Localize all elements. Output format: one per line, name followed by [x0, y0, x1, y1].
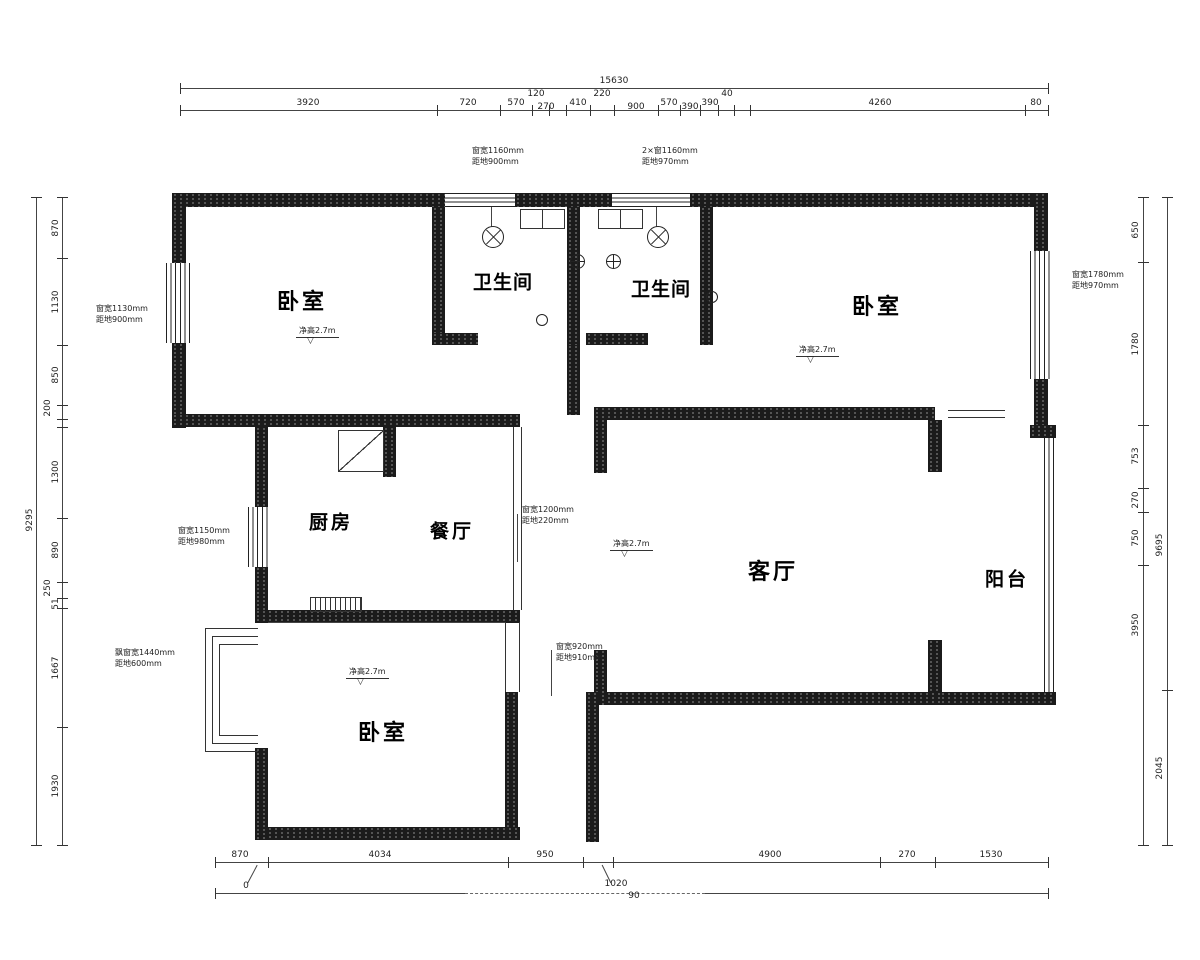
- dim-line-right-outer: [1167, 197, 1168, 845]
- dimension-tick: [583, 857, 584, 868]
- dim-label: 1300: [51, 461, 61, 484]
- wall-segment: [594, 407, 607, 473]
- dim-label: 220: [593, 89, 610, 99]
- door-opening: [505, 622, 520, 692]
- wall-segment: [940, 692, 1056, 705]
- dimension-tick: [508, 857, 509, 868]
- dim-label: 410: [569, 98, 586, 108]
- dim-label: 1667: [51, 657, 61, 680]
- wall-segment: [567, 207, 580, 345]
- wall-segment: [586, 333, 648, 345]
- dimension-tick: [1138, 488, 1149, 489]
- window-note: 窗宽1200mm 距地220mm: [522, 505, 574, 527]
- dimension-tick: [1138, 262, 1149, 263]
- elevation-triangle-icon: ▽: [621, 551, 653, 558]
- wall-segment: [383, 427, 396, 477]
- wall-segment: [172, 414, 520, 427]
- floorplan-page: { "icons": { "elevation_triangle": "▽" }…: [0, 0, 1200, 960]
- bay-window-symbol: [219, 644, 258, 736]
- dim-label: 270: [1131, 491, 1141, 508]
- wall-segment: [690, 193, 1048, 207]
- dimension-tick: [215, 888, 216, 899]
- dim-line-right: [1143, 197, 1144, 845]
- dimension-tick: [1162, 197, 1173, 198]
- wall-segment: [700, 207, 713, 345]
- note-line: 距地980mm: [178, 537, 230, 548]
- exhaust-fan-icon: [647, 226, 669, 248]
- dim-label: 9295: [25, 509, 35, 532]
- dimension-tick: [566, 105, 567, 116]
- wall-segment: [172, 193, 186, 263]
- dimension-tick: [57, 427, 68, 428]
- leader-line: [517, 514, 518, 562]
- dim-line-top-total: [180, 88, 1048, 89]
- fixture-icon: [606, 254, 621, 269]
- dimension-tick: [880, 857, 881, 868]
- elevation-triangle-icon: ▽: [357, 679, 389, 686]
- elevation-text: 净高2.7m: [296, 325, 339, 338]
- dimension-tick: [31, 845, 42, 846]
- dimension-tick: [1138, 565, 1149, 566]
- note-line: 距地900mm: [472, 157, 524, 168]
- exhaust-fan-icon: [482, 226, 504, 248]
- dim-label: 570: [507, 98, 524, 108]
- dimension-tick: [57, 608, 68, 609]
- balcony-glazing-symbol: [1044, 438, 1056, 692]
- dim-label: 15630: [600, 76, 629, 86]
- wall-segment: [432, 207, 445, 333]
- note-line: 窗宽1780mm: [1072, 270, 1124, 281]
- wall-segment: [172, 193, 445, 207]
- window-note: 2×窗1160mm 距地970mm: [642, 146, 698, 168]
- room-label-bath-right: 卫生间: [631, 275, 691, 302]
- bath-cabinet: [598, 209, 621, 229]
- dimension-tick: [31, 197, 42, 198]
- room-label-bath-left: 卫生间: [473, 268, 533, 295]
- dim-label: 753: [1131, 447, 1141, 464]
- note-line: 距地220mm: [522, 516, 574, 527]
- elevation-mark: 净高2.7m ▽: [796, 344, 839, 364]
- dim-label: 950: [536, 850, 553, 860]
- dim-label: 850: [51, 366, 61, 383]
- window-symbol: [445, 193, 515, 207]
- elevation-text: 净高2.7m: [346, 666, 389, 679]
- dimension-tick: [1138, 845, 1149, 846]
- dim-label: 3950: [1131, 614, 1141, 637]
- dimension-tick: [57, 405, 68, 406]
- window-symbol: [248, 507, 270, 567]
- dimension-tick: [57, 258, 68, 259]
- note-line: 2×窗1160mm: [642, 146, 698, 157]
- kitchen-counter: [338, 430, 384, 472]
- dimension-tick: [437, 105, 438, 116]
- dim-label: 4034: [369, 850, 392, 860]
- wall-segment: [255, 427, 268, 507]
- dim-label: 40: [721, 89, 732, 99]
- wall-segment: [567, 345, 580, 415]
- dim-label: 80: [1030, 98, 1041, 108]
- dim-label: 1780: [1131, 333, 1141, 356]
- note-line: 窗宽1130mm: [96, 304, 148, 315]
- dim-label: 570: [660, 98, 677, 108]
- dim-label: 250: [43, 579, 53, 596]
- dim-label: 1530: [980, 850, 1003, 860]
- bath-cabinet: [620, 209, 643, 229]
- dim-label: 3920: [297, 98, 320, 108]
- window-note: 飘窗宽1440mm 距地600mm: [115, 648, 175, 670]
- note-line: 飘窗宽1440mm: [115, 648, 175, 659]
- fixture-icon: [706, 291, 718, 303]
- dimension-tick: [1162, 690, 1173, 691]
- dim-label: 1130: [51, 291, 61, 314]
- dim-label: 870: [51, 219, 61, 236]
- wall-segment: [600, 692, 940, 705]
- dim-line-left: [62, 197, 63, 845]
- elevation-triangle-icon: ▽: [807, 357, 839, 364]
- window-symbol: [1030, 251, 1052, 379]
- dim-line-bottom: [215, 862, 1048, 863]
- dim-label: 1020: [605, 879, 628, 889]
- dim-label: 1930: [51, 775, 61, 798]
- dim-label: 870: [231, 850, 248, 860]
- elevation-text: 净高2.7m: [610, 538, 653, 551]
- room-label-living: 客厅: [748, 554, 798, 586]
- dimension-tick: [590, 105, 591, 116]
- fixture-icon: [536, 314, 548, 326]
- dimension-tick: [718, 105, 719, 116]
- dimension-tick: [57, 419, 68, 420]
- dimension-tick: [613, 857, 614, 868]
- note-line: 距地900mm: [96, 315, 148, 326]
- wall-segment: [928, 420, 942, 472]
- wall-segment: [255, 827, 520, 840]
- dim-label: 4900: [759, 850, 782, 860]
- dimension-tick: [532, 105, 533, 116]
- dimension-tick: [57, 845, 68, 846]
- note-line: 距地600mm: [115, 659, 175, 670]
- dim-line-left-outer: [36, 197, 37, 845]
- dim-label: 90: [628, 891, 639, 901]
- dimension-tick: [1048, 83, 1049, 94]
- window-note: 窗宽1150mm 距地980mm: [178, 526, 230, 548]
- dimension-tick: [750, 105, 751, 116]
- room-label-bedroom-top-left: 卧室: [277, 284, 327, 316]
- dimension-tick: [180, 83, 181, 94]
- wall-segment: [432, 333, 478, 345]
- dim-label: 720: [459, 98, 476, 108]
- note-line: 距地970mm: [642, 157, 698, 168]
- room-label-balcony: 阳台: [985, 565, 1029, 592]
- wall-segment: [600, 407, 935, 420]
- dim-line-bottom-total: [215, 893, 465, 894]
- dimension-tick: [614, 105, 615, 116]
- dim-label: 650: [1131, 221, 1141, 238]
- elevation-mark: 净高2.7m ▽: [610, 538, 653, 558]
- dimension-tick: [700, 105, 701, 116]
- leader-line: [551, 650, 552, 696]
- wall-segment: [586, 692, 599, 842]
- dimension-tick: [500, 105, 501, 116]
- dimension-tick: [57, 582, 68, 583]
- dimension-tick: [57, 518, 68, 519]
- dim-label: 2045: [1155, 757, 1165, 780]
- dim-label: 270: [898, 850, 915, 860]
- dimension-tick: [1025, 105, 1026, 116]
- dim-label: 270: [537, 102, 554, 112]
- room-boundary: [268, 622, 505, 623]
- dim-label: 900: [627, 102, 644, 112]
- window-note: 窗宽1780mm 距地970mm: [1072, 270, 1124, 292]
- note-line: 距地970mm: [1072, 281, 1124, 292]
- room-label-bedroom-bottom: 卧室: [358, 715, 408, 747]
- dimension-tick: [57, 345, 68, 346]
- dim-label: 4260: [869, 98, 892, 108]
- dim-label: 120: [527, 89, 544, 99]
- dimension-tick: [1138, 512, 1149, 513]
- dim-label: 390: [681, 102, 698, 112]
- window-symbol: [166, 263, 192, 343]
- wall-segment: [1034, 379, 1048, 427]
- dimension-tick: [1162, 845, 1173, 846]
- bath-cabinet: [542, 209, 565, 229]
- window-symbol: [612, 193, 690, 207]
- note-line: 距地910mm: [556, 653, 603, 664]
- dimension-tick: [1138, 197, 1149, 198]
- dim-label: 750: [1131, 529, 1141, 546]
- dim-label: 9695: [1155, 534, 1165, 557]
- room-label-bedroom-top-right: 卧室: [852, 289, 902, 321]
- wall-segment: [505, 692, 518, 840]
- dimension-tick: [57, 727, 68, 728]
- window-note: 窗宽1130mm 距地900mm: [96, 304, 148, 326]
- fixture-icon: [570, 254, 585, 269]
- dim-line-bottom-total2: [705, 893, 1048, 894]
- dimension-tick: [1138, 425, 1149, 426]
- dim-label: 890: [51, 541, 61, 558]
- dimension-tick: [57, 197, 68, 198]
- note-line: 窗宽1200mm: [522, 505, 574, 516]
- elevation-mark: 净高2.7m ▽: [296, 325, 339, 345]
- elevation-mark: 净高2.7m ▽: [346, 666, 389, 686]
- radiator-symbol: [310, 597, 362, 612]
- dimension-tick: [1048, 857, 1049, 868]
- dimension-tick: [57, 598, 68, 599]
- wall-segment: [1034, 193, 1048, 251]
- floorplan-drawing: 15630 3920 720 570 120 270 410 220 900 5…: [0, 0, 1200, 960]
- dimension-tick: [180, 105, 181, 116]
- dimension-tick: [1048, 105, 1049, 116]
- elevation-triangle-icon: ▽: [307, 338, 339, 345]
- elevation-text: 净高2.7m: [796, 344, 839, 357]
- window-note: 窗宽920mm 距地910mm: [556, 642, 603, 664]
- dimension-tick: [215, 857, 216, 868]
- bath-cabinet: [520, 209, 543, 229]
- room-label-kitchen: 厨房: [309, 508, 353, 535]
- note-line: 窗宽920mm: [556, 642, 603, 653]
- fan-stem: [491, 207, 492, 227]
- note-line: 窗宽1160mm: [472, 146, 524, 157]
- wall-segment: [515, 193, 612, 207]
- dim-label: 200: [43, 399, 53, 416]
- dimension-tick: [734, 105, 735, 116]
- dim-line-bottom-dashed: [465, 893, 705, 894]
- dimension-tick: [658, 105, 659, 116]
- note-line: 窗宽1150mm: [178, 526, 230, 537]
- dim-label: 390: [701, 98, 718, 108]
- room-label-dining: 餐厅: [430, 517, 474, 544]
- dimension-tick: [1048, 888, 1049, 899]
- window-note: 窗宽1160mm 距地900mm: [472, 146, 524, 168]
- dimension-tick: [935, 857, 936, 868]
- leader-line: [247, 865, 257, 883]
- dimension-tick: [268, 857, 269, 868]
- wall-segment: [1030, 425, 1056, 438]
- dimension-tick: [680, 105, 681, 116]
- dimension-tick: [549, 105, 550, 116]
- wall-segment: [255, 748, 268, 840]
- door-opening: [948, 410, 1005, 418]
- fan-stem: [656, 207, 657, 227]
